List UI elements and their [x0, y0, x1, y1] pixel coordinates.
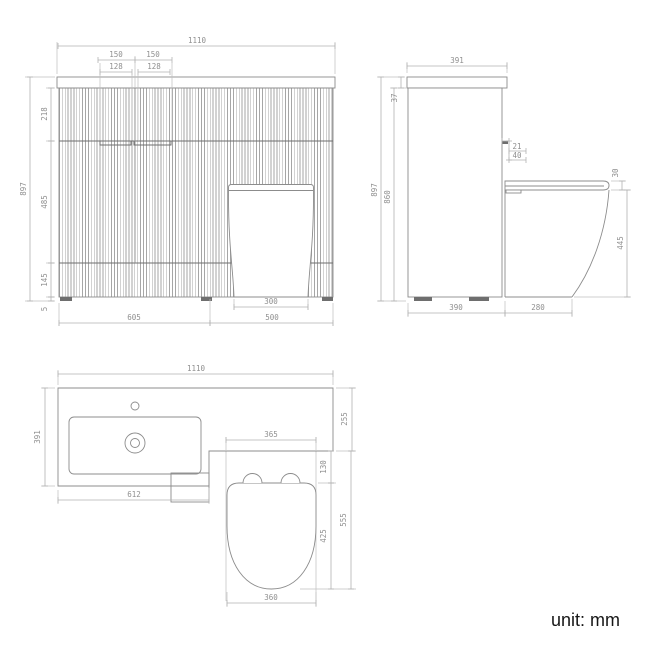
dim-label-side-seat-thickness: 30	[611, 168, 620, 178]
dim-label-side-flush-height: 40	[512, 151, 522, 160]
dim-label-front-toilet-unit-width: 500	[265, 313, 279, 322]
side-countertop	[407, 77, 507, 88]
plan-view: 1110 391 255 612 365 130 425 555 360	[33, 364, 356, 607]
dim-label-side-body-height: 860	[383, 190, 392, 204]
front-foot-right	[322, 297, 333, 301]
dim-label-plan-basin-section-width: 612	[127, 490, 141, 499]
front-foot-left	[60, 297, 72, 301]
plan-waste-outer	[125, 433, 145, 453]
dim-label-front-top-section: 218	[40, 107, 49, 121]
technical-drawing-sheet: 1110 150 150 128 128 897 218 485 145 5 3…	[0, 0, 650, 650]
dim-label-side-cabinet-depth: 390	[449, 303, 463, 312]
plan-waste-inner	[131, 439, 140, 448]
dim-label-front-lower-section: 145	[40, 273, 49, 287]
plan-seat-hinge-right	[281, 474, 300, 484]
front-elevation-view: 1110 150 150 128 128 897 218 485 145 5 3…	[19, 36, 335, 326]
unit-note: unit: mm	[551, 610, 620, 630]
dim-label-plan-toilet-depth: 555	[339, 513, 348, 527]
dim-label-side-depth-top: 391	[450, 56, 464, 65]
front-handle-left	[100, 141, 131, 145]
plan-basin	[69, 417, 201, 474]
side-toilet-seat	[505, 181, 609, 190]
plan-seat-hinge-left	[243, 474, 262, 484]
dim-label-front-total-width: 1110	[188, 36, 207, 45]
side-foot-front	[414, 297, 432, 301]
dim-label-front-vanity-width: 605	[127, 313, 141, 322]
dim-label-side-seat-height: 445	[616, 236, 625, 250]
side-foot-back	[469, 297, 489, 301]
dim-label-front-handle-right-outer: 150	[146, 50, 160, 59]
front-toilet-pan	[229, 185, 314, 298]
dim-label-plan-seat-length: 425	[319, 529, 328, 543]
side-pan-front-profile	[572, 190, 609, 297]
dim-label-plan-cistern-gap: 130	[319, 460, 328, 474]
dim-label-side-pan-projection: 280	[531, 303, 545, 312]
dim-label-side-total-height: 897	[370, 183, 379, 197]
dim-label-front-handle-left-outer: 150	[109, 50, 123, 59]
dim-label-plan-counter-depth: 255	[340, 412, 349, 426]
dim-label-plan-toilet-width: 365	[264, 430, 278, 439]
side-cabinet-body	[408, 88, 502, 297]
front-foot-middle	[201, 297, 212, 301]
dim-label-plan-total-width: 1110	[187, 364, 206, 373]
dim-label-plan-seat-width: 360	[264, 593, 278, 602]
front-handle-right	[134, 141, 171, 145]
plan-toilet-seat	[227, 483, 316, 589]
dim-label-front-handle-left-inner: 128	[109, 62, 123, 71]
dim-label-front-handle-right-inner: 128	[147, 62, 161, 71]
side-elevation-view: 391 37 897 860 21 40 30 445 390 280	[370, 56, 631, 317]
plan-side-panel	[171, 473, 209, 502]
plan-tap-hole	[131, 402, 139, 410]
dim-label-front-mid-section: 485	[40, 195, 49, 209]
dim-label-side-flush-offset: 21	[512, 142, 521, 151]
side-flush-button	[502, 141, 508, 144]
dim-label-plan-basin-depth: 391	[33, 430, 42, 444]
dim-label-side-counter-thickness: 37	[390, 93, 399, 102]
plan-countertop-outline	[58, 388, 333, 486]
vanity-toilet-dimension-drawing: 1110 150 150 128 128 897 218 485 145 5 3…	[0, 0, 650, 650]
dim-label-front-total-height: 897	[19, 182, 28, 196]
front-countertop	[57, 77, 335, 88]
dim-label-front-plinth: 5	[40, 307, 49, 312]
dim-label-front-toilet-base: 300	[264, 297, 278, 306]
side-seat-hinge	[506, 190, 521, 193]
